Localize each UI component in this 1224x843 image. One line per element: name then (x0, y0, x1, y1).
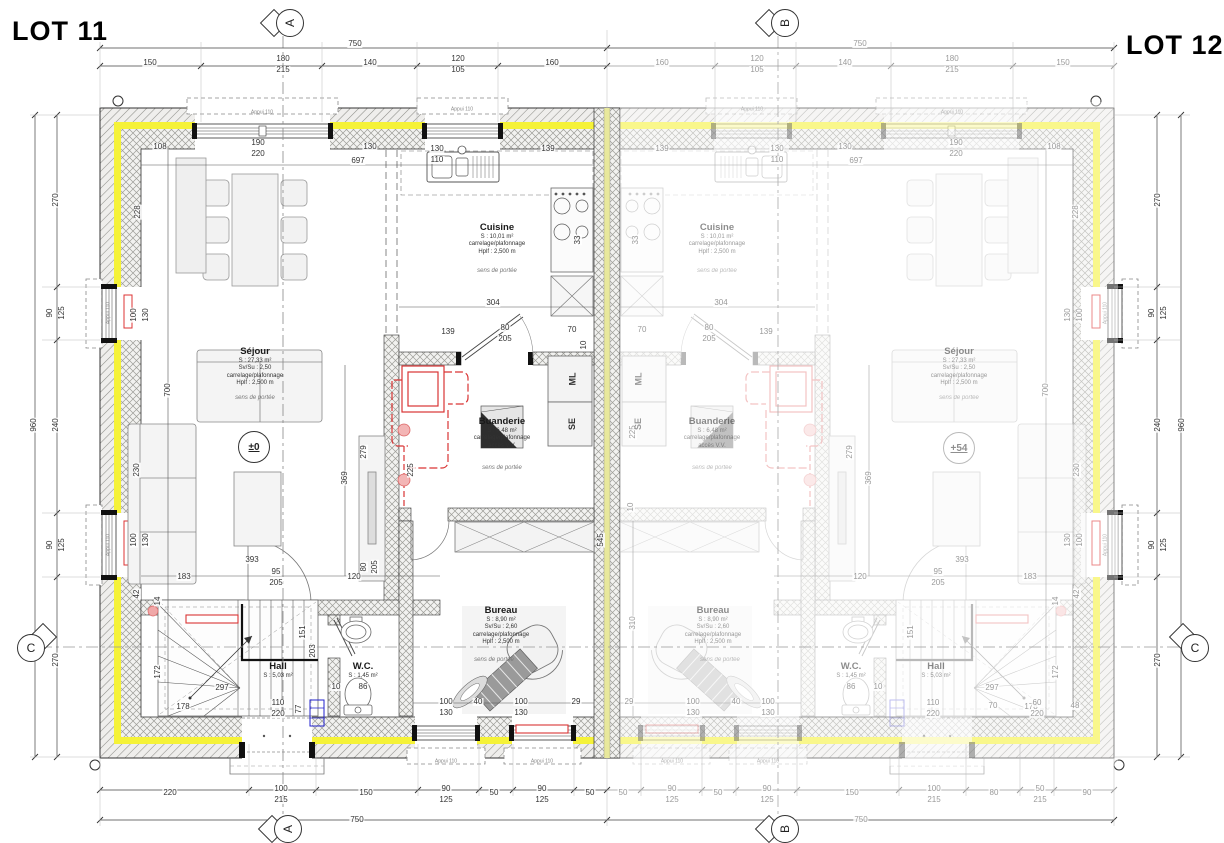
dim-label: 100 (926, 785, 941, 793)
dim-label: 369 (341, 470, 349, 485)
dim-label: 100 (513, 698, 528, 706)
level-marker-lot12: +54 (943, 432, 975, 464)
dim-label: 150 (358, 789, 373, 797)
dim-label: 203 (309, 643, 317, 658)
room-label-buanderie-lot12: Buanderie S : 6,48 m² carrelage/plafonna… (684, 416, 740, 450)
dim-label: 304 (485, 299, 500, 307)
dim-label: 60 (1032, 699, 1043, 707)
marker-letter: A (283, 19, 297, 27)
dim-label: 120 (749, 55, 764, 63)
dim-label: 178 (175, 703, 190, 711)
dim-label: 100 (130, 307, 138, 322)
dim-label: 50 (585, 789, 596, 797)
room-label-wc: W.C. S : 1,45 m² (348, 661, 377, 680)
dim-label: 697 (848, 157, 863, 165)
dim-label: 369 (865, 470, 873, 485)
marker-letter: B (778, 19, 792, 27)
marker-letter: B (778, 825, 792, 833)
dim-label: 90 (1148, 540, 1156, 551)
dim-label: 48 (1070, 702, 1081, 710)
dim-label: 130 (769, 145, 784, 153)
span-note: sens de portée (692, 465, 732, 471)
dim-label: 393 (954, 556, 969, 564)
dim-label: 139 (540, 145, 555, 153)
dim-label: 151 (907, 624, 915, 639)
span-note: sens de portée (939, 395, 979, 401)
dim-label: 125 (1160, 305, 1168, 320)
dim-label: 180 (944, 55, 959, 63)
span-note: sens de portée (697, 268, 737, 274)
dim-label: 215 (926, 796, 941, 804)
dim-label: 205 (268, 579, 283, 587)
dim-label: 42 (1073, 589, 1081, 600)
dim-label: 190 (250, 139, 265, 147)
dim-label: 270 (52, 652, 60, 667)
dim-label: 228 (1072, 204, 1080, 219)
dim-label: 100 (1076, 307, 1084, 322)
dim-label: 150 (844, 789, 859, 797)
dim-label: 29 (571, 698, 582, 706)
dim-label: 10 (873, 683, 884, 691)
dim-label: 750 (347, 40, 362, 48)
dim-label: 160 (654, 59, 669, 67)
room-label-cuisine: Cuisine S : 10,01 m² carrelage/plafonnag… (469, 222, 525, 256)
dim-label: 130 (1064, 532, 1072, 547)
dim-label: 279 (846, 444, 854, 459)
dim-label: 77 (295, 704, 303, 715)
dim-label: 279 (360, 444, 368, 459)
dim-label: 130 (1064, 307, 1072, 322)
dim-label: 10 (627, 502, 635, 513)
dim-label: 190 (948, 139, 963, 147)
dim-label: 545 (597, 532, 605, 547)
dim-label: Appui 110 (1104, 301, 1109, 325)
dim-label: 270 (1154, 652, 1162, 667)
dim-label: 50 (713, 789, 724, 797)
dim-label: 183 (1022, 573, 1037, 581)
dim-label: 130 (429, 145, 444, 153)
dryer-label-lot12: SE (633, 418, 643, 430)
dim-label: Appui 110 (107, 533, 112, 557)
dim-label: 230 (133, 462, 141, 477)
dim-label: Appui 110 (530, 760, 554, 765)
floor-plan-canvas: 7501501802151401201051607501601201051401… (0, 0, 1224, 843)
dim-label: 130 (513, 709, 528, 717)
dim-label: 90 (46, 308, 54, 319)
marker-letter: A (281, 825, 295, 833)
dim-label: 110 (430, 156, 445, 164)
dim-label: 183 (176, 573, 191, 581)
room-label-bureau: Bureau S : 8,90 m² Sv/Su : 2,60 carrelag… (473, 605, 529, 647)
dim-label: 100 (130, 532, 138, 547)
dim-label: Appui 110 (740, 108, 764, 113)
span-note: sens de portée (235, 395, 275, 401)
dim-label: 100 (1076, 532, 1084, 547)
room-label-sejour: Séjour S : 27,33 m² Sv/Su : 2,50 carrela… (227, 346, 283, 388)
dim-label: 180 (275, 55, 290, 63)
dim-label: 215 (944, 66, 959, 74)
dim-label: 140 (362, 59, 377, 67)
dim-label: 125 (759, 796, 774, 804)
dim-label: 90 (762, 785, 773, 793)
dim-label: 40 (473, 698, 484, 706)
dim-label: 220 (925, 710, 940, 718)
dryer-label: SE (567, 418, 577, 430)
dim-label: 100 (273, 785, 288, 793)
dim-label: 14 (154, 596, 162, 607)
dim-label: 230 (1073, 462, 1081, 477)
dim-label: 270 (52, 192, 60, 207)
dim-label: 130 (685, 709, 700, 717)
dim-label: 130 (362, 143, 377, 151)
dim-label: 750 (852, 40, 867, 48)
dim-label: 750 (349, 816, 364, 824)
dim-label: 205 (930, 579, 945, 587)
lot-11-label: LOT 11 (12, 16, 108, 47)
dim-label: 130 (142, 307, 150, 322)
dim-label: 240 (52, 417, 60, 432)
dim-label: 90 (1148, 308, 1156, 319)
dim-label: 70 (637, 326, 648, 334)
room-label-wc-lot12: W.C. S : 1,45 m² (836, 661, 865, 680)
dim-label: 220 (250, 150, 265, 158)
dim-label: 95 (271, 568, 282, 576)
dim-label: 80 (360, 562, 368, 573)
dim-label: 125 (438, 796, 453, 804)
dim-label: 700 (164, 382, 172, 397)
dim-label: 139 (440, 328, 455, 336)
dim-label: 205 (497, 335, 512, 343)
dim-label: 120 (450, 55, 465, 63)
dim-label: 33 (632, 235, 640, 246)
marker-letter: C (27, 641, 36, 655)
dim-label: 120 (852, 573, 867, 581)
dim-label: 220 (1029, 710, 1044, 718)
dim-label: 50 (489, 789, 500, 797)
dim-label: 393 (244, 556, 259, 564)
room-label-bureau-lot12: Bureau S : 8,90 m² Sv/Su : 2,60 carrelag… (685, 605, 741, 647)
dim-label: 80 (989, 789, 1000, 797)
dim-label: 220 (948, 150, 963, 158)
dim-label: 140 (837, 59, 852, 67)
dim-label: 215 (275, 66, 290, 74)
dim-label: 270 (1154, 192, 1162, 207)
dim-label: 310 (629, 615, 637, 630)
dim-label: Appui 110 (107, 301, 112, 325)
dim-label: 110 (926, 699, 941, 707)
dim-label: Appui 110 (940, 111, 964, 116)
dimension-layer: 7501501802151401201051607501601201051401… (0, 0, 1224, 843)
dim-label: 125 (58, 305, 66, 320)
dim-label: 100 (438, 698, 453, 706)
dim-label: 697 (350, 157, 365, 165)
dim-label: 100 (685, 698, 700, 706)
dim-label: Appui 110 (756, 760, 780, 765)
dim-label: 50 (1035, 785, 1046, 793)
dim-label: Appui 110 (660, 760, 684, 765)
dim-label: 304 (713, 299, 728, 307)
span-note: sens de portée (700, 657, 740, 663)
dim-label: 130 (760, 709, 775, 717)
dim-label: 70 (567, 326, 578, 334)
dim-label: 90 (46, 540, 54, 551)
dim-label: 220 (162, 789, 177, 797)
dim-label: 205 (371, 559, 379, 574)
room-label-sejour-lot12: Séjour S : 27,33 m² Sv/Su : 2,50 carrela… (931, 346, 987, 388)
marker-letter: C (1191, 641, 1200, 655)
dim-label: 130 (438, 709, 453, 717)
level-marker-lot11: ±0 (238, 431, 270, 463)
dim-label: 70 (988, 702, 999, 710)
dim-label: Appui 110 (434, 760, 458, 765)
dim-label: 50 (618, 789, 629, 797)
dim-label: 90 (1082, 789, 1093, 797)
dim-label: 40 (731, 698, 742, 706)
dim-label: 220 (270, 710, 285, 718)
dim-label: 120 (346, 573, 361, 581)
room-label-cuisine-lot12: Cuisine S : 10,01 m² carrelage/plafonnag… (689, 222, 745, 256)
dim-label: 86 (846, 683, 857, 691)
dim-label: 29 (624, 698, 635, 706)
dim-label: 960 (30, 417, 38, 432)
dim-label: 10 (580, 340, 588, 351)
dim-label: 750 (853, 816, 868, 824)
dim-label: 240 (1154, 417, 1162, 432)
dim-label: 297 (214, 684, 229, 692)
dim-label: 139 (758, 328, 773, 336)
dim-label: 139 (654, 145, 669, 153)
dim-label: 172 (1052, 664, 1060, 679)
span-note: sens de portée (477, 268, 517, 274)
dim-label: 130 (837, 143, 852, 151)
washing-machine-label: ML (568, 373, 578, 386)
dim-label: 95 (933, 568, 944, 576)
dim-label: 90 (537, 785, 548, 793)
room-label-hall-lot12: Hall S : 5,03 m² (921, 661, 950, 680)
dim-label: 151 (299, 624, 307, 639)
dim-label: 125 (534, 796, 549, 804)
dim-label: 700 (1042, 382, 1050, 397)
dim-label: 42 (133, 589, 141, 600)
dim-label: 160 (544, 59, 559, 67)
dim-label: 105 (450, 66, 465, 74)
room-label-hall: Hall S : 5,03 m² (263, 661, 292, 680)
dim-label: 105 (749, 66, 764, 74)
dim-label: Appui 110 (250, 111, 274, 116)
dim-label: 215 (1032, 796, 1047, 804)
dim-label: 10 (331, 683, 342, 691)
dim-label: Appui 110 (1104, 533, 1109, 557)
dim-label: 110 (770, 156, 785, 164)
span-note: sens de portée (474, 657, 514, 663)
dim-label: 150 (142, 59, 157, 67)
dim-label: 90 (441, 785, 452, 793)
dim-label: 150 (1055, 59, 1070, 67)
dim-label: 110 (271, 699, 286, 707)
lot-12-label: LOT 12 (1126, 30, 1224, 61)
dim-label: 86 (358, 683, 369, 691)
dim-label: 108 (1046, 143, 1061, 151)
dim-label: 108 (152, 143, 167, 151)
washing-machine-label-lot12: ML (634, 373, 644, 386)
dim-label: 130 (142, 532, 150, 547)
dim-label: 33 (574, 235, 582, 246)
dim-label: 125 (58, 537, 66, 552)
dim-label: 125 (664, 796, 679, 804)
dim-label: 80 (500, 324, 511, 332)
dim-label: 225 (407, 462, 415, 477)
span-note: sens de portée (482, 465, 522, 471)
dim-label: 90 (667, 785, 678, 793)
dim-label: 215 (273, 796, 288, 804)
room-label-buanderie: Buanderie S : 6,48 m² carrelage/plafonna… (474, 416, 530, 450)
dim-label: 14 (1052, 596, 1060, 607)
dim-label: 172 (154, 664, 162, 679)
dim-label: 100 (760, 698, 775, 706)
dim-label: 297 (984, 684, 999, 692)
dim-label: 228 (134, 204, 142, 219)
dim-label: 125 (1160, 537, 1168, 552)
dim-label: Appui 110 (450, 108, 474, 113)
dim-label: 960 (1178, 417, 1186, 432)
dim-label: 205 (701, 335, 716, 343)
dim-label: 80 (704, 324, 715, 332)
